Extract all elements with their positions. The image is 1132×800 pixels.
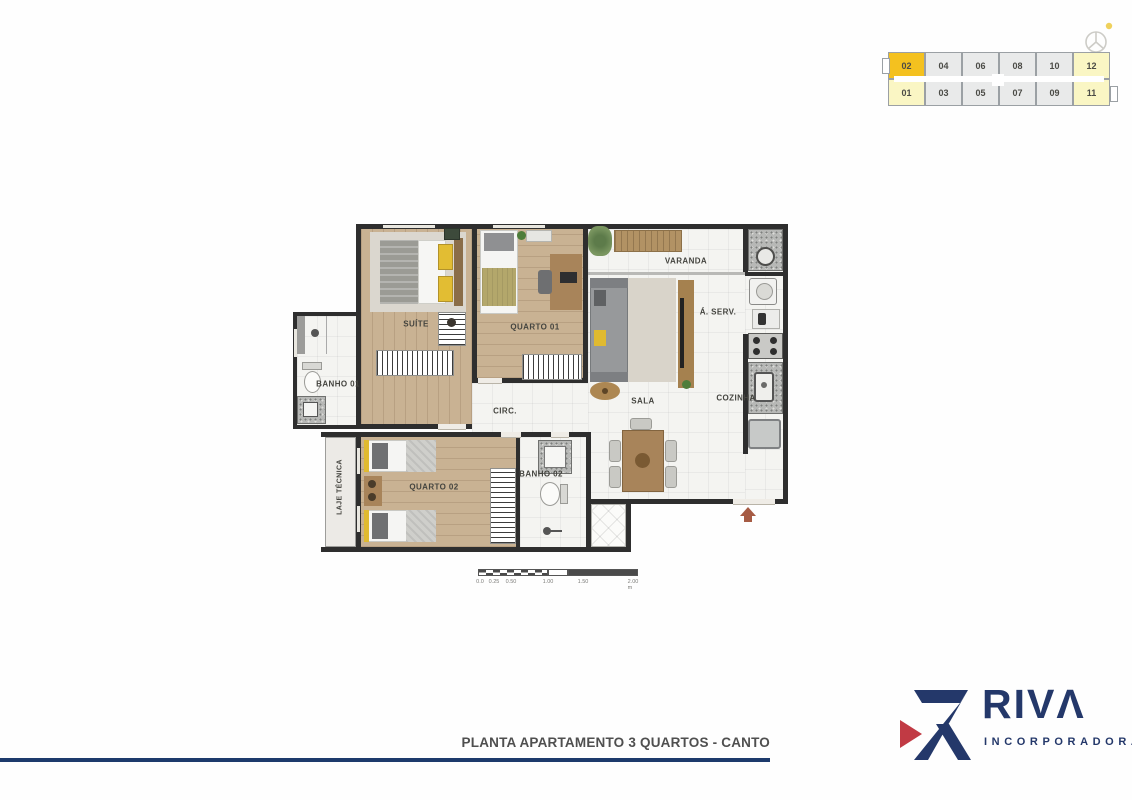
- unit-cell-11: 11: [1073, 79, 1110, 106]
- banho01-sink: [303, 402, 318, 417]
- label-circ: CIRC.: [493, 407, 517, 416]
- q2-lamp-2: [368, 493, 376, 501]
- sofa-arm-bottom: [590, 372, 628, 382]
- keymap-tab-left: [882, 58, 890, 74]
- unit-cell-07: 07: [999, 79, 1036, 106]
- q1-laptop: [560, 272, 577, 283]
- sofa-arm-top: [590, 278, 628, 288]
- keymap-tab-right: [1110, 86, 1118, 102]
- tv-plant: [682, 380, 691, 389]
- label-banho01: BANHO 01: [316, 380, 360, 389]
- scale-tick-5: 2.00 m: [628, 579, 639, 591]
- scale-bar-checker: [478, 569, 548, 576]
- wall-bottom: [321, 547, 631, 552]
- floor-plan: SUÍTE QUARTO 01 VARANDA Á. SERV. BANHO 0…: [288, 214, 804, 562]
- wall-banho02-right: [586, 432, 591, 552]
- wall-suite-quarto01: [472, 224, 477, 382]
- q2-bed2-pillow: [372, 513, 388, 539]
- window-quarto02-b: [357, 506, 360, 532]
- varanda-sink: [756, 247, 775, 266]
- dining-centerpiece: [635, 453, 650, 468]
- banho02-shower-arm: [550, 530, 562, 532]
- scale-tick-1: 0.25: [489, 579, 500, 585]
- scale-tick-2: 0.50: [506, 579, 517, 585]
- fridge: [748, 419, 781, 449]
- riva-logo-subtitle: INCORPORADORA: [984, 736, 1132, 748]
- unit-cell-10: 10: [1036, 52, 1073, 79]
- q1-wardrobe: [522, 354, 582, 380]
- burner-1: [753, 337, 760, 344]
- q2-bed2-blanket: [406, 510, 436, 542]
- sofa-pillow-dark: [594, 290, 606, 306]
- dining-chair-4: [665, 466, 677, 488]
- scale-tick-3: 1.00: [543, 579, 554, 585]
- sala-rug: [628, 278, 676, 382]
- q2-wardrobe: [490, 468, 516, 544]
- wall-quarto01-sala: [583, 224, 588, 382]
- suite-pillow-1: [438, 244, 453, 270]
- banho01-toilet-tank: [302, 362, 322, 370]
- caption-underline: [0, 758, 770, 762]
- burner-3: [753, 348, 760, 355]
- banho01-shower-head: [311, 329, 319, 337]
- q2-bed1-pillow: [372, 443, 388, 469]
- label-aserv: Á. SERV.: [700, 308, 737, 317]
- page: 02 04 06 08 10 12 01 03 05 07 09 11: [0, 0, 1132, 800]
- banho02-toilet-tank: [560, 484, 568, 504]
- unit-cell-08: 08: [999, 52, 1036, 79]
- suite-spot: [447, 318, 456, 327]
- label-quarto01: QUARTO 01: [510, 323, 559, 332]
- entry-arrow-stem: [744, 516, 752, 522]
- unit-key-map: 02 04 06 08 10 12 01 03 05 07 09 11: [888, 52, 1110, 106]
- dining-chair-3: [665, 440, 677, 462]
- q1-shelf: [526, 230, 552, 242]
- label-laje-tecnica: LAJE TÉCNICA: [337, 459, 344, 515]
- burner-4: [770, 348, 777, 355]
- q1-pillow: [484, 233, 514, 251]
- unit-cell-02: 02: [888, 52, 925, 79]
- plan-caption: PLANTA APARTAMENTO 3 QUARTOS - CANTO: [462, 735, 770, 750]
- tv-screen: [680, 298, 684, 368]
- label-sala: SALA: [631, 397, 654, 406]
- riva-logo: RIVΛ INCORPORADORA: [894, 684, 1120, 776]
- dining-chair-2: [609, 466, 621, 488]
- banho02-shower-inner: [544, 446, 566, 468]
- window-quarto01: [493, 225, 545, 228]
- side-table-center: [602, 388, 608, 394]
- wall-quarto02-banho02: [516, 437, 520, 547]
- unit-cell-01: 01: [888, 79, 925, 106]
- door-opening-entry: [733, 499, 775, 505]
- entry-shaft-mat: [591, 504, 626, 547]
- suite-wall-art: [444, 228, 460, 240]
- sofa-pillow-yellow: [594, 330, 606, 346]
- banho01-shower-divider: [326, 316, 327, 354]
- dining-chair-1: [609, 440, 621, 462]
- ironing-board: [752, 309, 780, 329]
- washing-machine-door: [756, 283, 773, 300]
- unit-cell-04: 04: [925, 52, 962, 79]
- window-quarto02-a: [357, 448, 360, 474]
- unit-cell-12: 12: [1073, 52, 1110, 79]
- q2-lamp-1: [368, 480, 376, 488]
- label-cozinha: COZINHA: [716, 394, 755, 403]
- window-suite: [383, 225, 435, 228]
- circ-floor: [472, 383, 588, 432]
- wall-banho01-bottom: [293, 425, 356, 429]
- varanda-plant: [588, 226, 612, 256]
- banho01-shower-door: [297, 316, 305, 354]
- label-varanda: VARANDA: [665, 257, 707, 266]
- scale-tick-0: 0.0: [476, 579, 484, 585]
- dining-chair-5: [630, 418, 652, 430]
- suite-pillow-2: [438, 276, 453, 302]
- wall-suite-left: [356, 224, 361, 429]
- q1-blanket: [482, 268, 516, 306]
- wall-right: [783, 224, 788, 504]
- scale-bar: 0.0 0.25 0.50 1.00 1.50 2.00 m: [478, 563, 638, 587]
- kitchen-faucet: [761, 382, 767, 388]
- door-opening-banho02: [551, 432, 569, 438]
- scale-bar-white: [548, 569, 568, 576]
- varanda-sala-divider: [588, 272, 745, 275]
- iron: [758, 313, 766, 325]
- unit-cell-03: 03: [925, 79, 962, 106]
- q2-bed1-accent: [364, 440, 369, 472]
- suite-headboard: [454, 238, 463, 306]
- label-quarto02: QUARTO 02: [409, 483, 458, 492]
- q1-plant: [517, 231, 526, 240]
- wall-counter-divider: [745, 272, 783, 276]
- scale-tick-4: 1.50: [578, 579, 589, 585]
- burner-2: [770, 337, 777, 344]
- suite-bed-blanket: [380, 240, 418, 304]
- q2-bed2-accent: [364, 510, 369, 542]
- riva-logo-text: RIVΛ: [982, 684, 1086, 725]
- riva-logo-mark-icon: [894, 684, 974, 768]
- q2-bed1-blanket: [406, 440, 436, 472]
- entry-arrow-icon: [740, 507, 756, 516]
- banho02-toilet-bowl: [540, 482, 560, 506]
- varanda-bench: [614, 230, 682, 252]
- q1-chair: [538, 270, 552, 294]
- suite-wardrobe: [376, 350, 454, 376]
- door-opening-quarto01: [478, 378, 502, 384]
- keymap-tab-mid: [992, 74, 1004, 86]
- label-suite: SUÍTE: [403, 320, 429, 329]
- label-banho02: BANHO 02: [519, 470, 563, 479]
- unit-cell-09: 09: [1036, 79, 1073, 106]
- wall-mat-right: [626, 504, 631, 547]
- door-opening-suite: [438, 424, 466, 430]
- scale-bar-solid: [568, 569, 638, 576]
- door-opening-quarto02: [501, 432, 521, 438]
